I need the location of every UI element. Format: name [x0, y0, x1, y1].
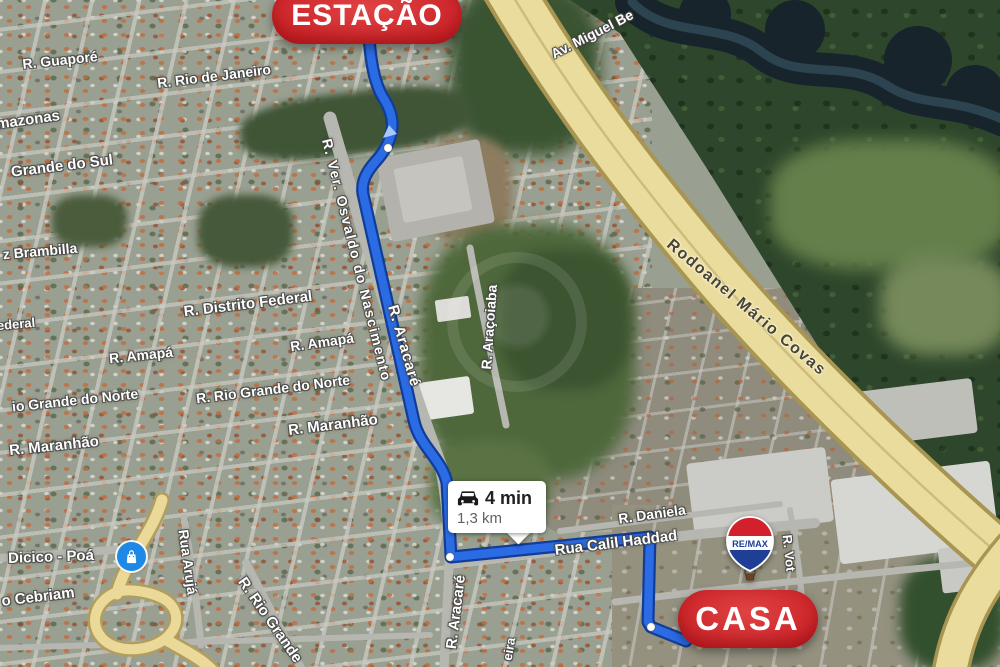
street-labels-layer: R. GuaporéR. Rio de JaneiromazonasGrande… — [0, 0, 1000, 667]
origin-marker-estacao: ESTAÇÃO — [272, 0, 462, 44]
street-label: Rua Calil Haddad — [554, 527, 679, 559]
street-label: R. Guaporé — [22, 48, 99, 72]
remax-balloon-logo: RE/MAX — [724, 516, 776, 587]
street-label: io Grande do Norte — [11, 385, 139, 414]
street-label: R. Daniela — [617, 501, 686, 526]
street-label: R. Aracaré — [384, 303, 424, 389]
destination-marker-casa: CASA — [678, 590, 818, 648]
car-icon — [457, 490, 479, 508]
route-distance: 1,3 km — [457, 510, 546, 527]
shopping-bag-glyph — [123, 548, 140, 565]
street-label: R. Rio de Janeiro — [156, 61, 271, 91]
route-infobox: 4 min 1,3 km — [448, 481, 546, 533]
street-label: R. Amapá — [289, 330, 355, 355]
street-label: R. Rio Grande do Norte — [195, 372, 351, 407]
origin-label: ESTAÇÃO — [291, 0, 442, 33]
street-label: Av. Miguel Be — [548, 6, 636, 61]
street-label: ederal — [0, 315, 36, 333]
street-label: R. Distrito Federal — [183, 288, 313, 321]
street-label: R. Rio Grande — [234, 574, 305, 666]
destination-label: CASA — [695, 600, 801, 638]
route-duration: 4 min — [485, 488, 532, 509]
street-label: R. Amapá — [108, 344, 173, 367]
street-label: Rua Arujá — [176, 528, 201, 595]
map-canvas[interactable]: R. GuaporéR. Rio de JaneiromazonasGrande… — [0, 0, 1000, 667]
street-label: R. Maranhão — [287, 411, 378, 439]
street-label: mazonas — [0, 107, 61, 133]
street-label: R. Aracaré — [443, 574, 469, 650]
street-label: R. Maranhão — [8, 433, 99, 459]
street-label: R. Araçoiaba — [478, 284, 500, 370]
street-label: R. Ver. Osvaldo do Nascimento — [319, 137, 395, 383]
balloon-icon: RE/MAX — [724, 516, 776, 582]
street-label: z Brambilla — [2, 240, 78, 262]
street-label: eira — [500, 636, 519, 661]
street-label: Rodoanel Mário Covas — [663, 236, 830, 380]
shopping-bag-icon[interactable] — [117, 542, 146, 571]
remax-text: RE/MAX — [732, 539, 769, 549]
street-label: o Cebriam — [1, 584, 76, 610]
street-label: Dicico - Poá — [8, 547, 94, 567]
street-label: Grande do Sul — [10, 151, 114, 180]
street-label: R. Vot — [780, 534, 799, 572]
